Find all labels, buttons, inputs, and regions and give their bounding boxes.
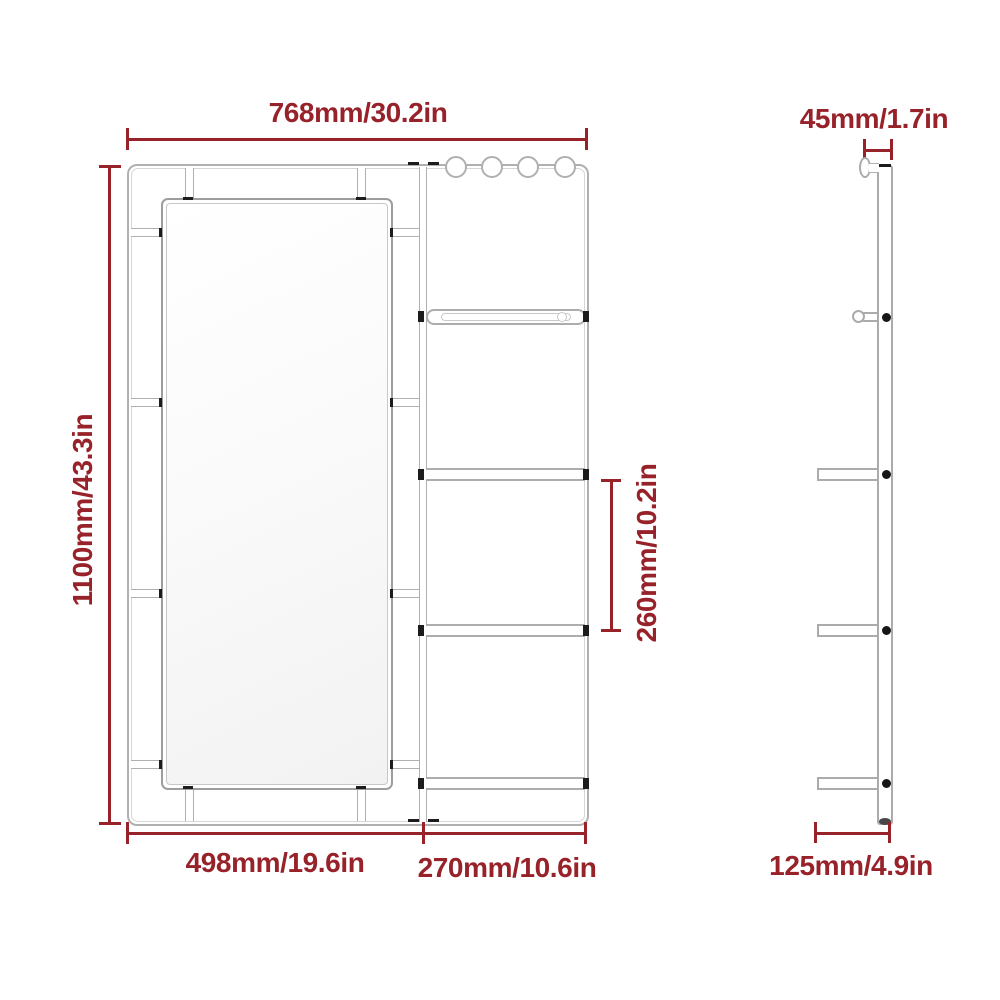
- light-bulb-icon: [517, 156, 539, 178]
- dim-label-shelf-section-width: 270mm/10.6in: [418, 854, 597, 882]
- shelf-end-cap: [418, 778, 424, 789]
- dim-label-frame-depth: 45mm/1.7in: [800, 105, 949, 133]
- mount-dot: [882, 470, 891, 479]
- side-shelf: [817, 624, 879, 637]
- joint-mark: [159, 589, 162, 598]
- support-rail: [392, 760, 420, 769]
- towel-peg-ball: [852, 310, 865, 323]
- dimension-line-bottom: [127, 832, 587, 835]
- dimension-line-shelf-spacing: [610, 480, 613, 632]
- towel-bar-end: [557, 312, 567, 322]
- shelf-end-cap: [583, 311, 589, 322]
- light-bulb-icon: [481, 156, 503, 178]
- dimension-tick: [126, 128, 129, 150]
- frame-divider: [419, 167, 427, 822]
- joint-mark: [428, 162, 439, 165]
- support-post: [357, 787, 366, 821]
- support-rail: [131, 760, 162, 769]
- dim-label-shelf-depth: 125mm/4.9in: [769, 852, 933, 880]
- joint-mark: [879, 164, 891, 167]
- shelf: [426, 777, 585, 790]
- joint-mark: [159, 398, 162, 407]
- dimension-line-total-height: [108, 166, 111, 825]
- support-rail: [131, 398, 162, 407]
- dimension-tick: [126, 822, 129, 844]
- joint-mark: [183, 786, 193, 789]
- joint-mark: [408, 819, 419, 822]
- wall-knob-stem: [869, 163, 879, 173]
- joint-mark: [159, 760, 162, 769]
- joint-mark: [159, 228, 162, 237]
- dim-label-total-height: 1100mm/43.3in: [69, 414, 97, 607]
- support-rail: [131, 589, 162, 598]
- dimension-tick: [99, 822, 121, 825]
- joint-mark: [408, 162, 419, 165]
- shelf: [426, 468, 585, 481]
- joint-mark: [183, 197, 193, 200]
- mount-dot: [882, 313, 891, 322]
- shelf-end-cap: [418, 625, 424, 636]
- joint-mark: [390, 760, 393, 769]
- support-rail: [392, 589, 420, 598]
- dimension-diagram: 768mm/30.2in 1100mm/43.3in: [0, 0, 1000, 1000]
- joint-mark: [428, 819, 439, 822]
- joint-mark: [390, 589, 393, 598]
- dimension-line-shelf-depth: [815, 832, 891, 835]
- dimension-tick: [888, 822, 891, 843]
- dimension-tick: [601, 629, 621, 632]
- shelf-end-cap: [583, 625, 589, 636]
- towel-bar-rod: [441, 313, 571, 321]
- dim-label-shelf-spacing: 260mm/10.2in: [633, 464, 661, 643]
- light-bulb-icon: [554, 156, 576, 178]
- dim-label-mirror-section-width: 498mm/19.6in: [186, 849, 365, 877]
- dimension-tick: [585, 128, 588, 150]
- shelf: [426, 624, 585, 637]
- mount-dot: [882, 626, 891, 635]
- dimension-tick: [890, 139, 893, 160]
- dimension-tick: [814, 822, 817, 843]
- joint-mark: [390, 228, 393, 237]
- joint-mark: [356, 786, 366, 789]
- shelf-end-cap: [583, 778, 589, 789]
- dim-label-total-width: 768mm/30.2in: [269, 99, 448, 127]
- shelf-end-cap: [418, 311, 424, 322]
- support-rail: [392, 398, 420, 407]
- mount-dot: [882, 779, 891, 788]
- side-shelf: [817, 777, 879, 790]
- support-rail: [131, 228, 162, 237]
- dimension-line-total-width: [127, 138, 588, 141]
- dimension-tick: [422, 822, 425, 844]
- light-bulb-icon: [445, 156, 467, 178]
- side-profile-bar: [877, 165, 893, 825]
- shelf-end-cap: [583, 469, 589, 480]
- side-shelf: [817, 468, 879, 481]
- mirror-face: [166, 203, 388, 785]
- mirror: [161, 198, 393, 790]
- support-rail: [392, 228, 420, 237]
- dimension-tick: [584, 822, 587, 844]
- joint-mark: [390, 398, 393, 407]
- dimension-line-frame-depth: [864, 149, 893, 152]
- dimension-tick: [601, 479, 621, 482]
- joint-mark: [356, 197, 366, 200]
- shelf-end-cap: [418, 469, 424, 480]
- support-post: [185, 787, 194, 821]
- dimension-tick: [99, 165, 121, 168]
